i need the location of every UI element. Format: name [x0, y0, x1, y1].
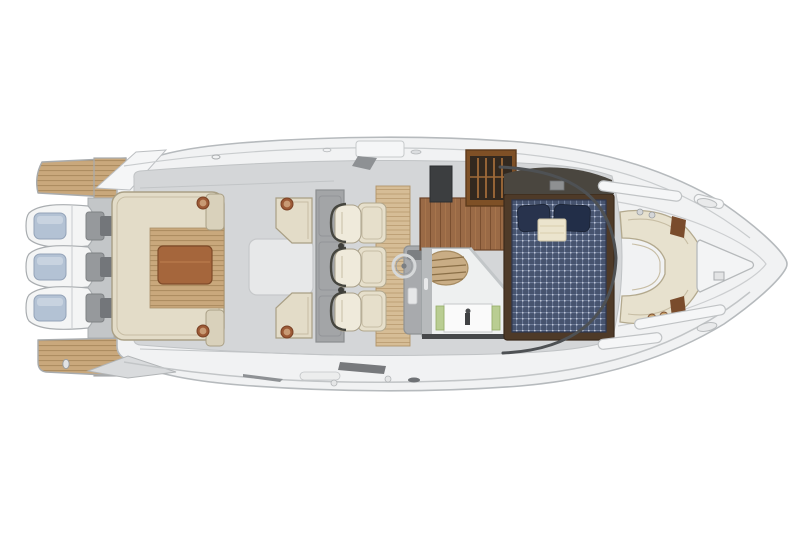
exhaust-vent	[408, 378, 420, 383]
hull-pocket	[300, 372, 340, 380]
head-wall	[422, 248, 432, 336]
console-door	[408, 288, 417, 304]
cupholder	[649, 212, 655, 218]
seat-pedestal	[338, 243, 344, 249]
steering-wheel	[393, 255, 415, 277]
helm-seat-2	[331, 247, 386, 287]
speaker	[197, 325, 209, 337]
folded-towel	[538, 219, 566, 241]
glass-accent-right	[492, 306, 500, 330]
helm-seat-1	[331, 203, 386, 243]
settee-arm-top	[206, 194, 224, 230]
speaker	[281, 198, 293, 210]
sink-basin	[465, 313, 470, 325]
drain-fitting	[385, 376, 391, 382]
gunwale-step	[356, 141, 404, 157]
boat-floorplan-screenshot	[0, 0, 800, 533]
galley-appliance	[430, 166, 452, 202]
outboard-engines	[26, 205, 113, 330]
headliner-vent	[550, 181, 564, 190]
deck-hatch	[249, 239, 313, 295]
deck-fitting-2	[411, 150, 421, 154]
helm-seat-3	[331, 291, 386, 331]
faucet	[466, 309, 471, 314]
towel-bar	[424, 278, 428, 290]
cupholder	[637, 209, 643, 215]
hatch-latch	[714, 272, 724, 280]
speaker	[281, 326, 293, 338]
head-bulkhead	[422, 334, 508, 339]
seat-pedestal	[338, 287, 344, 293]
aft-settee	[112, 192, 224, 346]
boat-floorplan-svg	[0, 0, 800, 533]
glass-accent-left	[436, 306, 444, 330]
cabin-cutaway	[420, 150, 614, 340]
vanity-sink	[444, 304, 492, 332]
speaker	[197, 197, 209, 209]
platform-badge	[63, 359, 69, 368]
drain-fitting	[331, 380, 337, 386]
cockpit-table	[158, 246, 212, 284]
